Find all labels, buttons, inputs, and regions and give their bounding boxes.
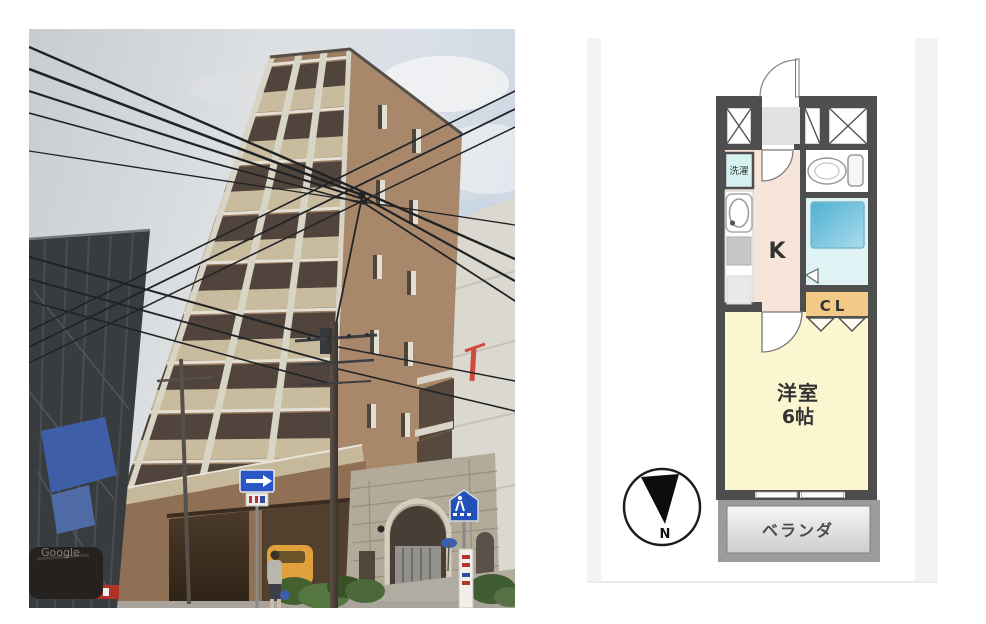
plan-left-margin [587,38,601,583]
toilet-icon [808,155,863,186]
counter-cabinet [727,276,751,304]
stove-icon [727,237,751,265]
building-photo[interactable]: Google [29,29,515,608]
entrance-lamp [378,526,385,533]
garage-opening [169,511,249,608]
room-labels: 洋室 6帖 [777,381,819,428]
plan-bottom-edge [587,581,938,583]
page: Google [0,0,986,624]
closet-label: CL [820,297,849,315]
laundry-label: 洗濯 [729,165,749,177]
bag [280,590,290,600]
compass-icon: N [624,469,700,545]
building-photo-canvas: Google [29,29,515,608]
balcony: ベランダ [718,500,880,562]
transformer [320,328,332,354]
room-type-label: 洋室 [777,381,819,405]
floor-plan-canvas: 洗濯 K [587,38,938,583]
laundry-area: 洗濯 [725,153,753,188]
compass-north-label: N [660,527,671,542]
bathtub-icon [811,202,864,248]
google-watermark: Google [41,546,80,559]
kitchen-label: K [768,239,786,264]
one-way-sign-icon [240,470,274,492]
floor-plan-image[interactable]: 洗濯 K [587,38,938,583]
plan-right-margin [915,38,938,583]
sink-icon [726,194,752,232]
entrance-floor [762,107,801,145]
balcony-label: ベランダ [762,521,834,540]
room-size-label: 6帖 [782,405,814,428]
